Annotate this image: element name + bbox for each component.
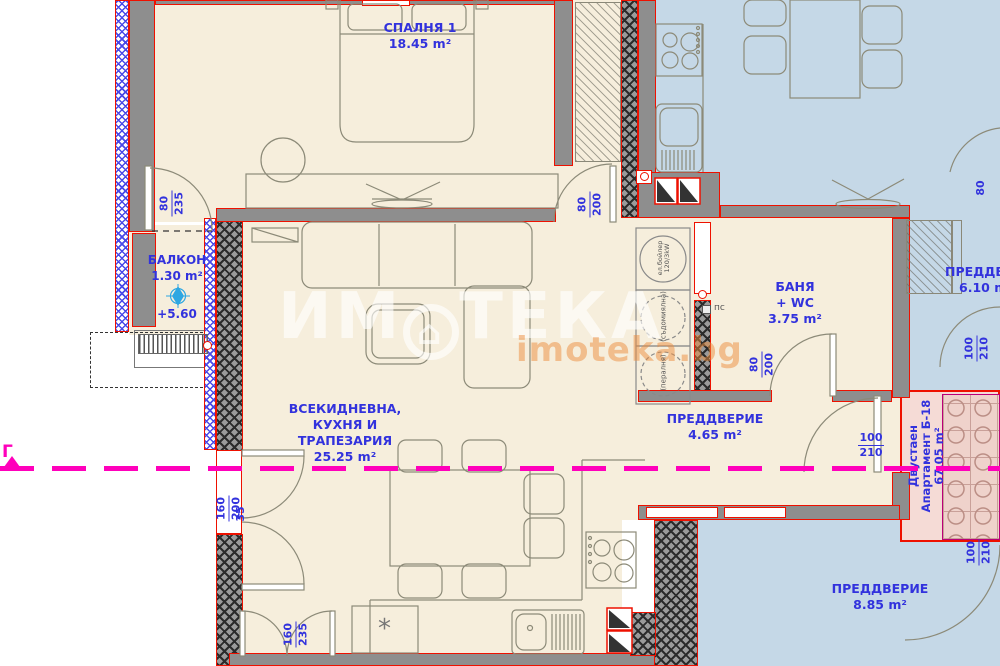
wall-bathroom-top — [720, 205, 910, 218]
dim-top-right-door: 80 — [975, 176, 987, 200]
label-apartment: Двустаен Апартамент Б-18 67.05 m² — [907, 386, 951, 526]
label-vestibule-bottom: ПРЕДДВЕРИЕ8.85 m² — [810, 581, 950, 613]
section-line — [0, 466, 1000, 471]
wall-bottom-right-column — [654, 520, 698, 666]
vent-marker-dot — [640, 172, 649, 181]
bathroom-marker-dot — [698, 290, 707, 299]
label-balcony-level: +5.60 — [127, 306, 227, 322]
label-living: ВСЕКИДНЕВНА, КУХНЯ И ТРАПЕЗАРИЯ 25.25 m² — [260, 401, 430, 465]
dim-vestibule-door: 100210 — [966, 533, 993, 573]
watermark-site: imoteka.bg — [516, 330, 743, 370]
house-icon: ⌂ — [403, 304, 459, 360]
label-bathroom: БАНЯ + WC 3.75 m² — [735, 279, 855, 327]
wall-marker-dot — [203, 341, 212, 350]
label-balcony: БАЛКОН1.30 m² — [127, 252, 227, 284]
label-dishwasher: (съдомиялна) — [661, 290, 668, 344]
wall-bedroom-right — [554, 0, 573, 166]
dim-balcony-door: 80235 — [159, 184, 186, 224]
shaft-bathroom — [694, 222, 711, 294]
wall-living-top — [216, 208, 556, 222]
wall-bathroom-bottom-left — [638, 390, 772, 402]
dim-living-window-offset: 35 — [235, 504, 247, 524]
dim-corridor-door-right: 100210 — [964, 329, 991, 369]
wall-bedroom-top — [155, 0, 555, 5]
section-arrow-icon — [4, 456, 20, 467]
wall-kitchen-corner — [630, 612, 656, 656]
window-hall-bottom-a — [646, 507, 718, 518]
label-hallway: ПРЕДДВЕРИЕ4.65 m² — [635, 411, 795, 443]
dim-bathroom-door: 80200 — [749, 345, 776, 385]
kitchen-marker: * — [378, 614, 391, 644]
dim-kitchen-window: 160235 — [283, 615, 310, 655]
label-corridor-right: ПРЕДДВЕРИЕ 6.10 m² — [945, 264, 1000, 296]
wall-bathroom-bottom-right — [832, 390, 892, 402]
ps-box-icon — [702, 305, 711, 314]
wall-left-top — [129, 0, 155, 232]
label-boiler: ел.бойлер120/3kW — [657, 238, 671, 278]
wall-living-left-lower — [216, 534, 243, 666]
wall-bottom — [229, 653, 655, 666]
floor-plan: ИМ⌂ТЕКА imoteka.bg СПАЛНЯ 118.45 m² БАЛК… — [0, 0, 1000, 666]
label-bedroom: СПАЛНЯ 118.45 m² — [340, 20, 500, 52]
balcony-radiator — [138, 334, 208, 354]
window-bedroom-top — [362, 0, 410, 6]
label-washer: (пералня) — [661, 346, 668, 400]
wardrobe-bedroom — [575, 2, 621, 162]
window-hall-bottom-b — [724, 507, 786, 518]
dim-bedroom-door: 80200 — [577, 185, 604, 225]
wall-central-hatch — [621, 0, 638, 218]
dim-entrance-door: 100210 — [851, 432, 891, 459]
label-ps: пс — [714, 303, 725, 313]
